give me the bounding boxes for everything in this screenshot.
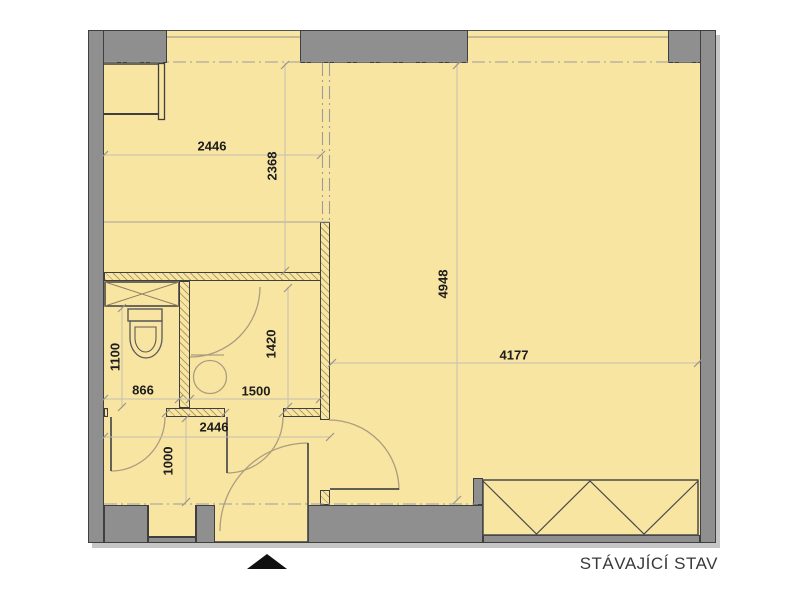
dim-kitchen-depth: 2368 xyxy=(265,152,280,181)
living-door-arc xyxy=(329,420,399,490)
dim-wc-width: 866 xyxy=(132,383,154,398)
centerlines xyxy=(104,62,700,504)
dim-kitchen-width: 2446 xyxy=(198,139,227,154)
dimension-lines xyxy=(104,63,700,503)
closet-partition xyxy=(104,64,165,120)
dimension-ticks xyxy=(100,61,702,506)
bathroom-inner-arc xyxy=(190,287,260,357)
dim-wc-depth: 1100 xyxy=(108,343,123,371)
dim-living-depth: 4948 xyxy=(436,270,451,299)
wc-door-arc xyxy=(111,417,165,471)
shaft-cross-icon xyxy=(105,282,179,306)
wardrobe-icon xyxy=(483,480,698,535)
dim-living-width: 4177 xyxy=(500,348,529,363)
floor-plan: 2446 2368 4948 4177 1100 866 1420 1500 2… xyxy=(0,0,800,600)
dim-bathroom-depth: 1420 xyxy=(264,330,279,359)
washbasin-icon xyxy=(194,361,227,394)
dim-hall-width: 2446 xyxy=(200,420,229,435)
dim-hall-depth: 1000 xyxy=(161,447,176,476)
plan-linework xyxy=(0,0,800,600)
bathroom-door-arc xyxy=(227,417,283,473)
toilet-icon xyxy=(128,309,162,358)
dim-bathroom-width: 1500 xyxy=(242,384,271,399)
plan-caption: STÁVAJÍCÍ STAV xyxy=(580,554,718,574)
entrance-arrow-icon xyxy=(247,554,287,569)
entry-door-arc xyxy=(220,443,308,531)
